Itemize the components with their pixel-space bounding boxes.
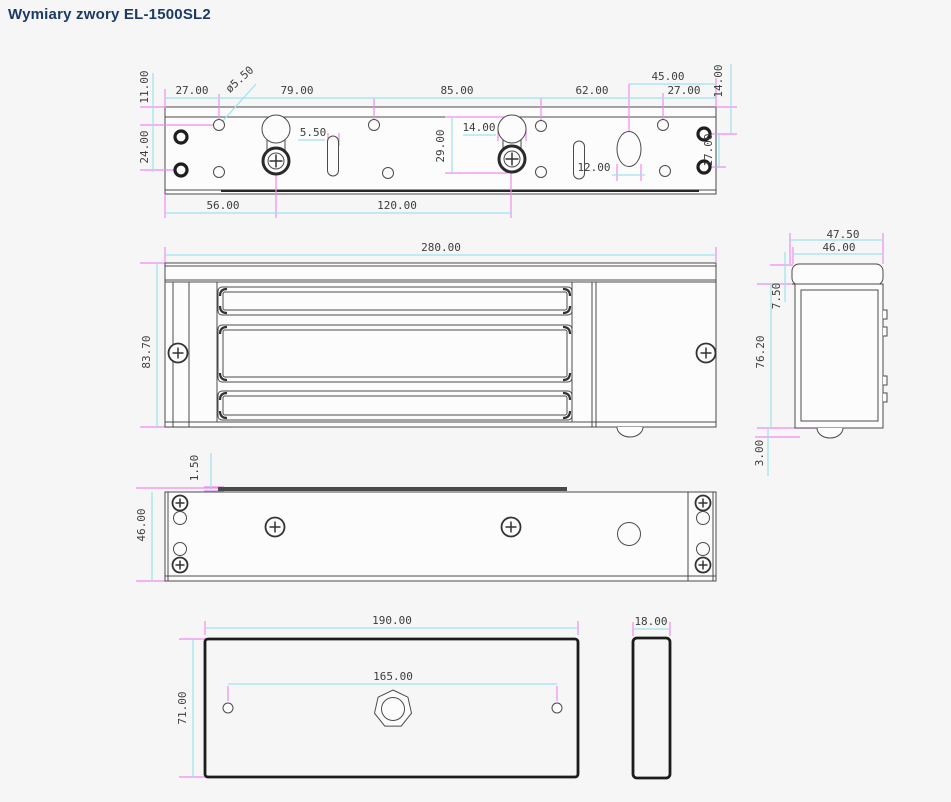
dim-hole-col-5: 27.00 bbox=[667, 84, 700, 97]
side-body bbox=[795, 284, 883, 428]
dim-bottom-depth: 46.00 bbox=[135, 508, 148, 541]
dim-armature-thickness: 18.00 bbox=[634, 615, 667, 628]
front-view: 280.00 83.70 bbox=[140, 241, 716, 437]
dim-oval-width: 12.00 bbox=[577, 161, 610, 174]
dim-front-height: 83.70 bbox=[140, 335, 153, 368]
dim-armature-height: 71.00 bbox=[176, 691, 189, 724]
dim-offset-top: 11.00 bbox=[138, 70, 151, 103]
dim-screw-spacing: 120.00 bbox=[377, 199, 417, 212]
dim-body-height: 76.20 bbox=[754, 335, 767, 368]
dim-keyhole-width: 14.00 bbox=[462, 121, 495, 134]
dim-row-spacing-right: 17.00 bbox=[702, 133, 715, 166]
front-body bbox=[165, 282, 716, 427]
slot-1 bbox=[328, 136, 339, 176]
sensor-hole bbox=[618, 523, 641, 546]
dim-hole-col-4: 62.00 bbox=[575, 84, 608, 97]
page: { "title": "Wymiary zwory EL-1500SL2", "… bbox=[0, 0, 951, 802]
bottom-view: 1.50 46.00 bbox=[135, 453, 716, 581]
dim-offset-right-top: 14.00 bbox=[712, 64, 725, 97]
top-view: 11.00 27.00 ø5.50 79.00 85.00 62.00 27.0… bbox=[138, 63, 737, 218]
armature-plate-view: 190.00 165.00 71.00 bbox=[176, 614, 578, 777]
dim-overall-depth: 47.50 bbox=[826, 228, 859, 241]
side-edge-tabs bbox=[883, 310, 887, 402]
dim-keyhole-length: 29.00 bbox=[434, 129, 447, 162]
dim-front-width: 280.00 bbox=[421, 241, 461, 254]
side-top-cap bbox=[792, 264, 883, 285]
side-bottom-pin bbox=[817, 428, 843, 438]
dim-cap-height: 7.50 bbox=[770, 283, 783, 310]
dim-oval-to-edge: 45.00 bbox=[651, 70, 684, 83]
dim-hole-col-2: 79.00 bbox=[280, 84, 313, 97]
technical-drawing: 11.00 27.00 ø5.50 79.00 85.00 62.00 27.0… bbox=[0, 0, 951, 802]
dim-row-spacing-left: 24.00 bbox=[138, 130, 151, 163]
bottom-pin bbox=[617, 427, 643, 437]
armature-side-strip bbox=[633, 638, 670, 778]
dim-armature-hole-spacing: 165.00 bbox=[373, 670, 413, 683]
armature-side-view: 18.00 bbox=[633, 615, 670, 778]
rubber-strip bbox=[218, 487, 567, 491]
side-view: 47.50 46.00 7.50 76.20 3.00 bbox=[753, 228, 887, 476]
dim-body-depth: 46.00 bbox=[822, 241, 855, 254]
armature-hole-right bbox=[552, 703, 562, 713]
dim-plate-thickness: 1.50 bbox=[188, 455, 201, 482]
dim-slot-width: 5.50 bbox=[300, 126, 327, 139]
cable-oval bbox=[617, 132, 641, 167]
dim-hole-diameter: ø5.50 bbox=[223, 63, 256, 95]
dim-screw-offset: 56.00 bbox=[206, 199, 239, 212]
dim-pin-protrusion: 3.00 bbox=[753, 440, 766, 467]
dim-hole-col-3: 85.00 bbox=[440, 84, 473, 97]
dim-armature-width: 190.00 bbox=[372, 614, 412, 627]
center-bolt bbox=[375, 690, 412, 726]
dim-hole-col-1: 27.00 bbox=[175, 84, 208, 97]
armature-hole-left bbox=[223, 703, 233, 713]
